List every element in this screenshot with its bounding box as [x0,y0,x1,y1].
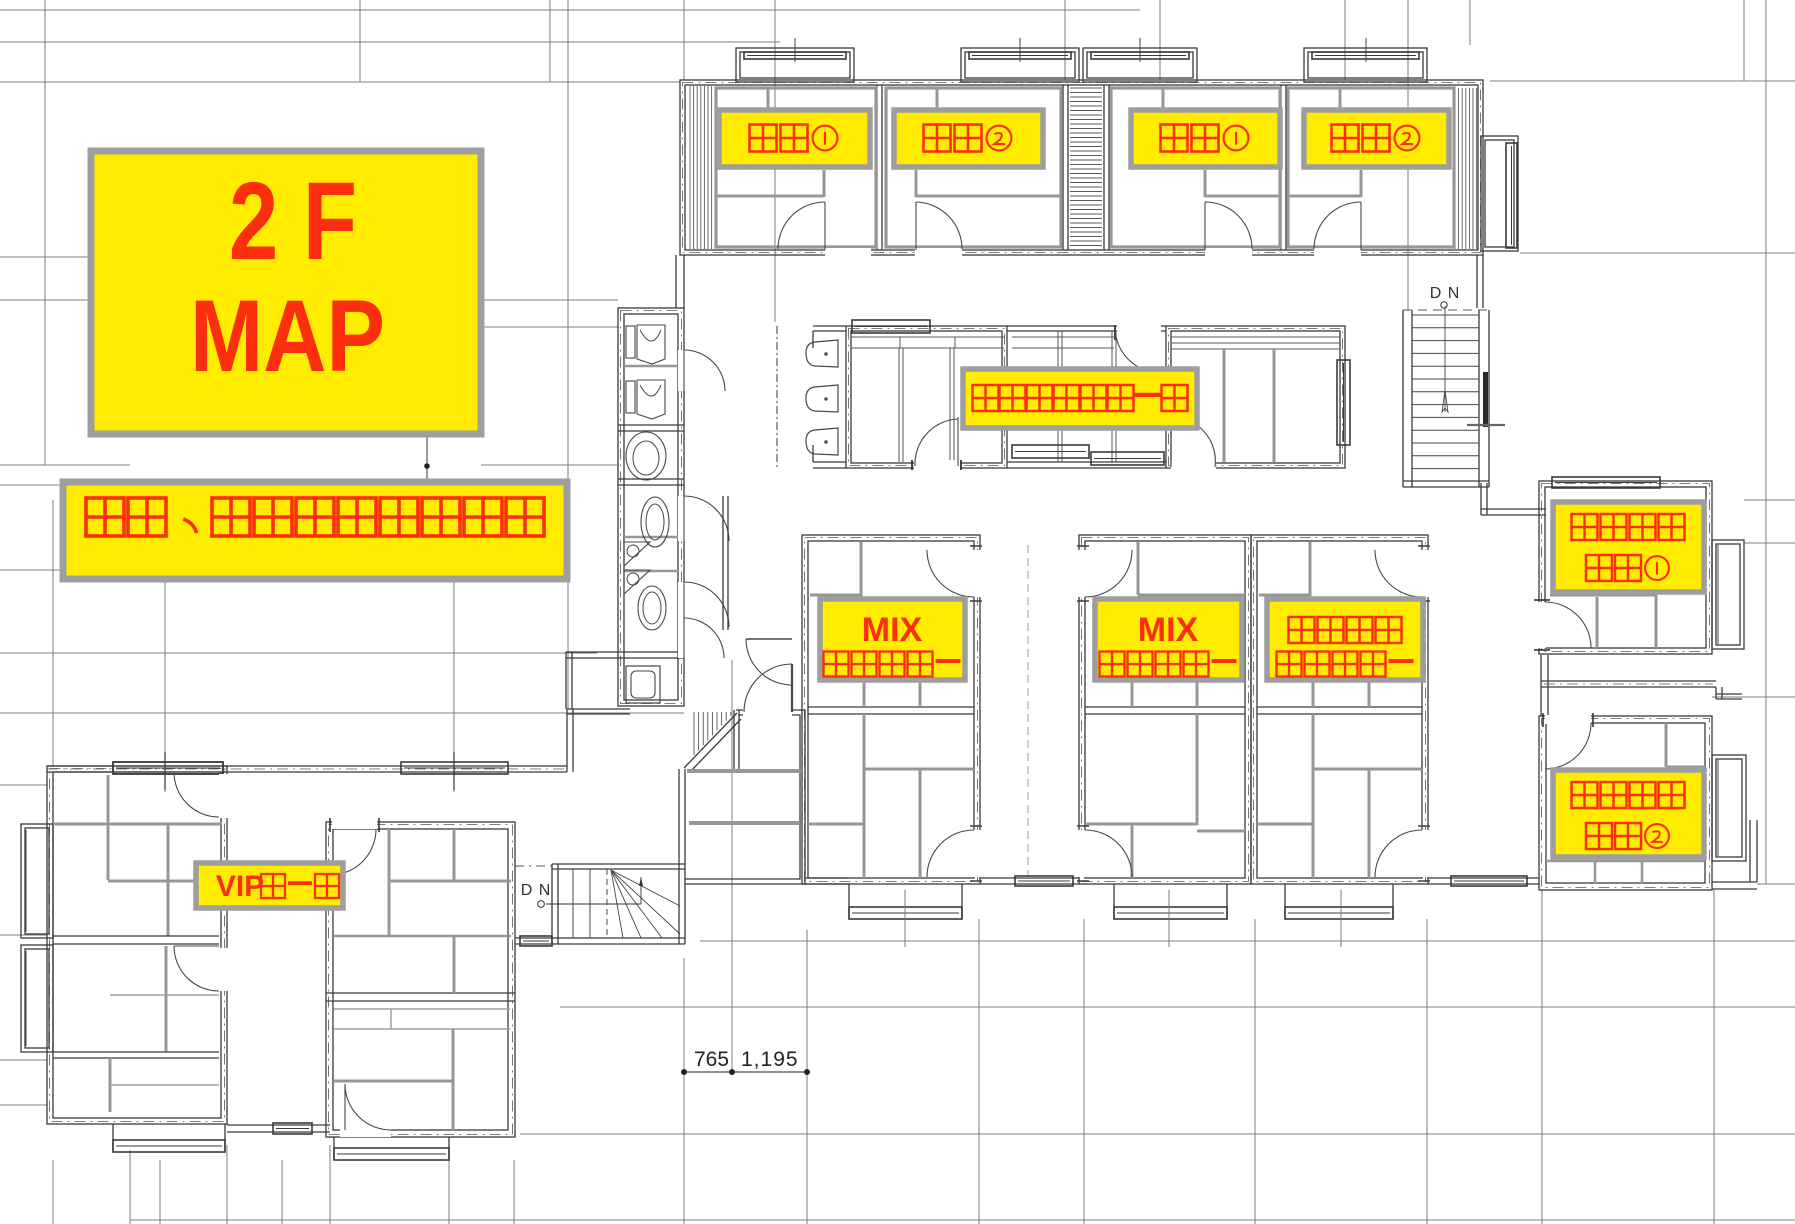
svg-text:D N: D N [521,882,552,899]
svg-text:1,195: 1,195 [741,1048,799,1071]
svg-text:VIP: VIP [216,870,264,903]
svg-text:D N: D N [1430,285,1461,302]
svg-text:2 F: 2 F [229,160,357,283]
svg-text:MAP: MAP [190,279,385,393]
svg-text:765: 765 [694,1048,729,1071]
svg-text:MIX: MIX [862,611,923,649]
svg-text:MIX: MIX [1138,611,1199,649]
